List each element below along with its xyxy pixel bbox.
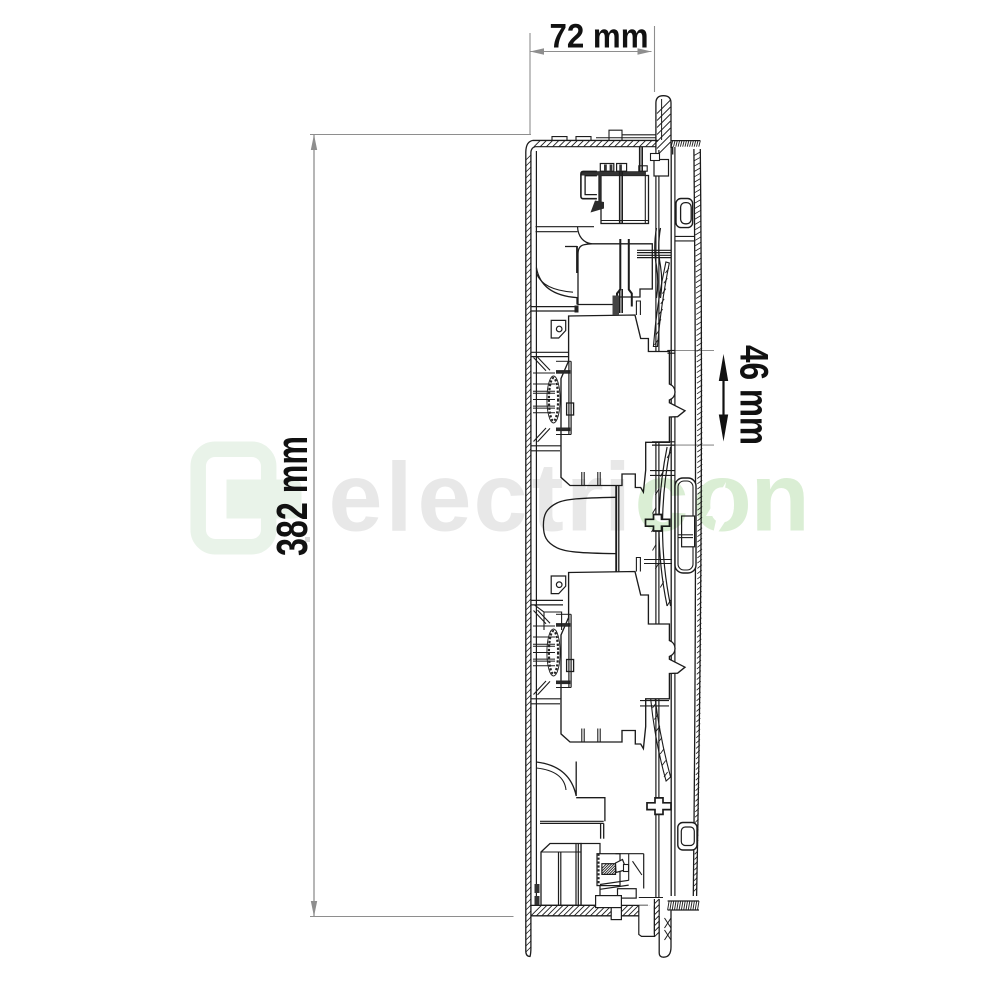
svg-text:r: r	[566, 443, 604, 552]
svg-text:72 mm: 72 mm	[550, 18, 649, 56]
svg-text:e: e	[329, 443, 383, 552]
svg-text:c: c	[635, 443, 689, 552]
svg-text:c: c	[474, 443, 528, 552]
svg-text:n: n	[751, 443, 810, 552]
svg-text:e: e	[418, 443, 472, 552]
svg-text:46 mm: 46 mm	[732, 345, 776, 445]
svg-text:382 mm: 382 mm	[269, 436, 317, 556]
svg-text:l: l	[386, 443, 413, 552]
svg-text:i: i	[604, 443, 631, 552]
svg-text:t: t	[532, 443, 564, 552]
